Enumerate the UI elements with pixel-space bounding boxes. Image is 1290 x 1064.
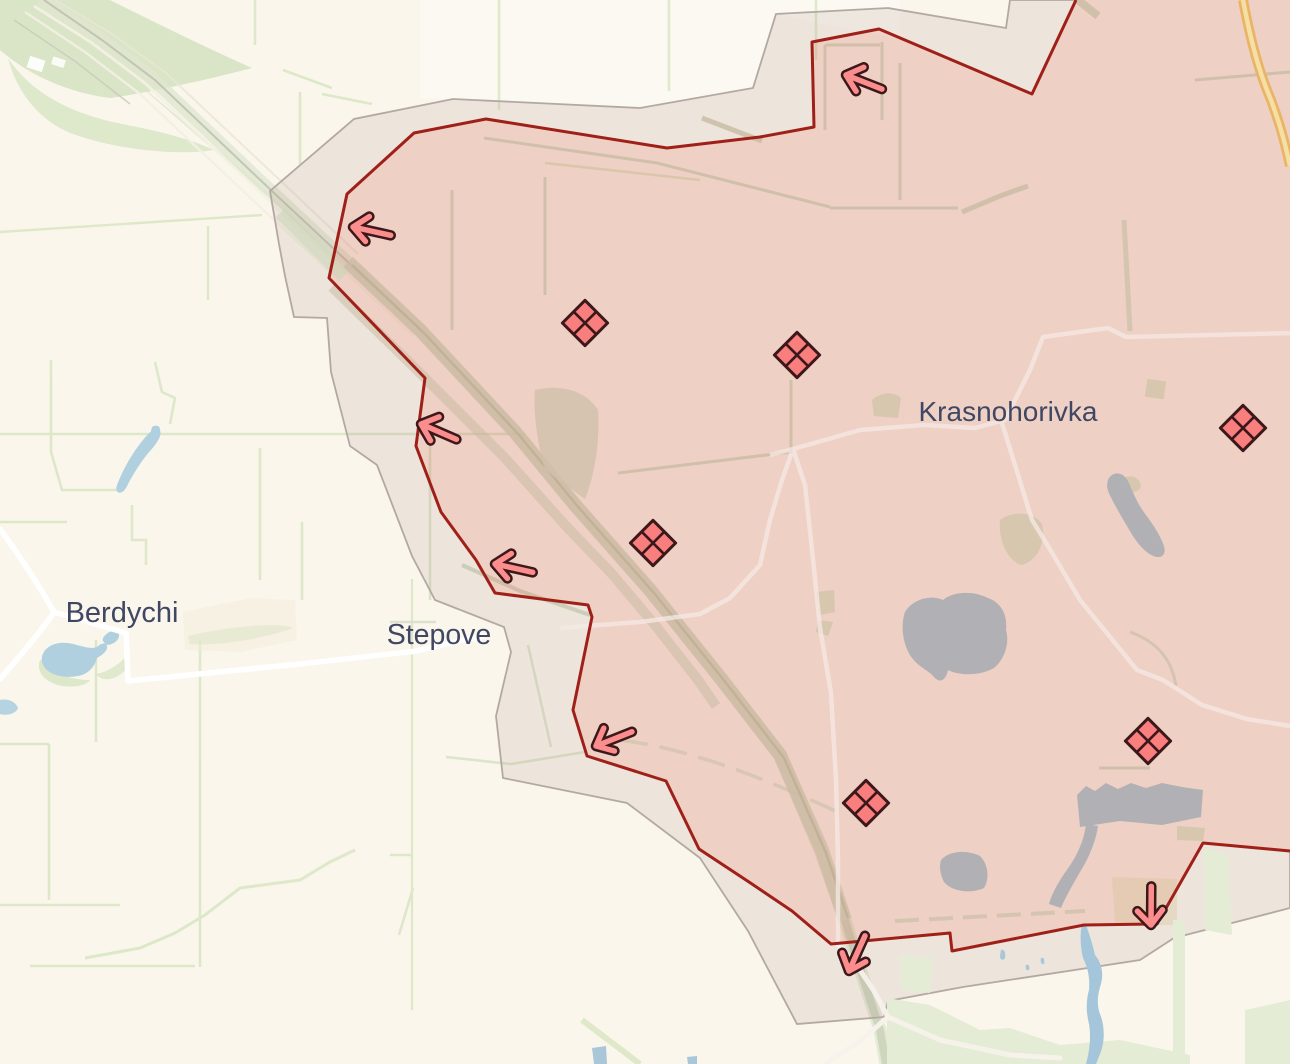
svg-text:Stepove: Stepove bbox=[387, 619, 492, 651]
svg-text:Krasnohorivka: Krasnohorivka bbox=[919, 396, 1098, 427]
svg-text:Berdychi: Berdychi bbox=[66, 597, 179, 629]
